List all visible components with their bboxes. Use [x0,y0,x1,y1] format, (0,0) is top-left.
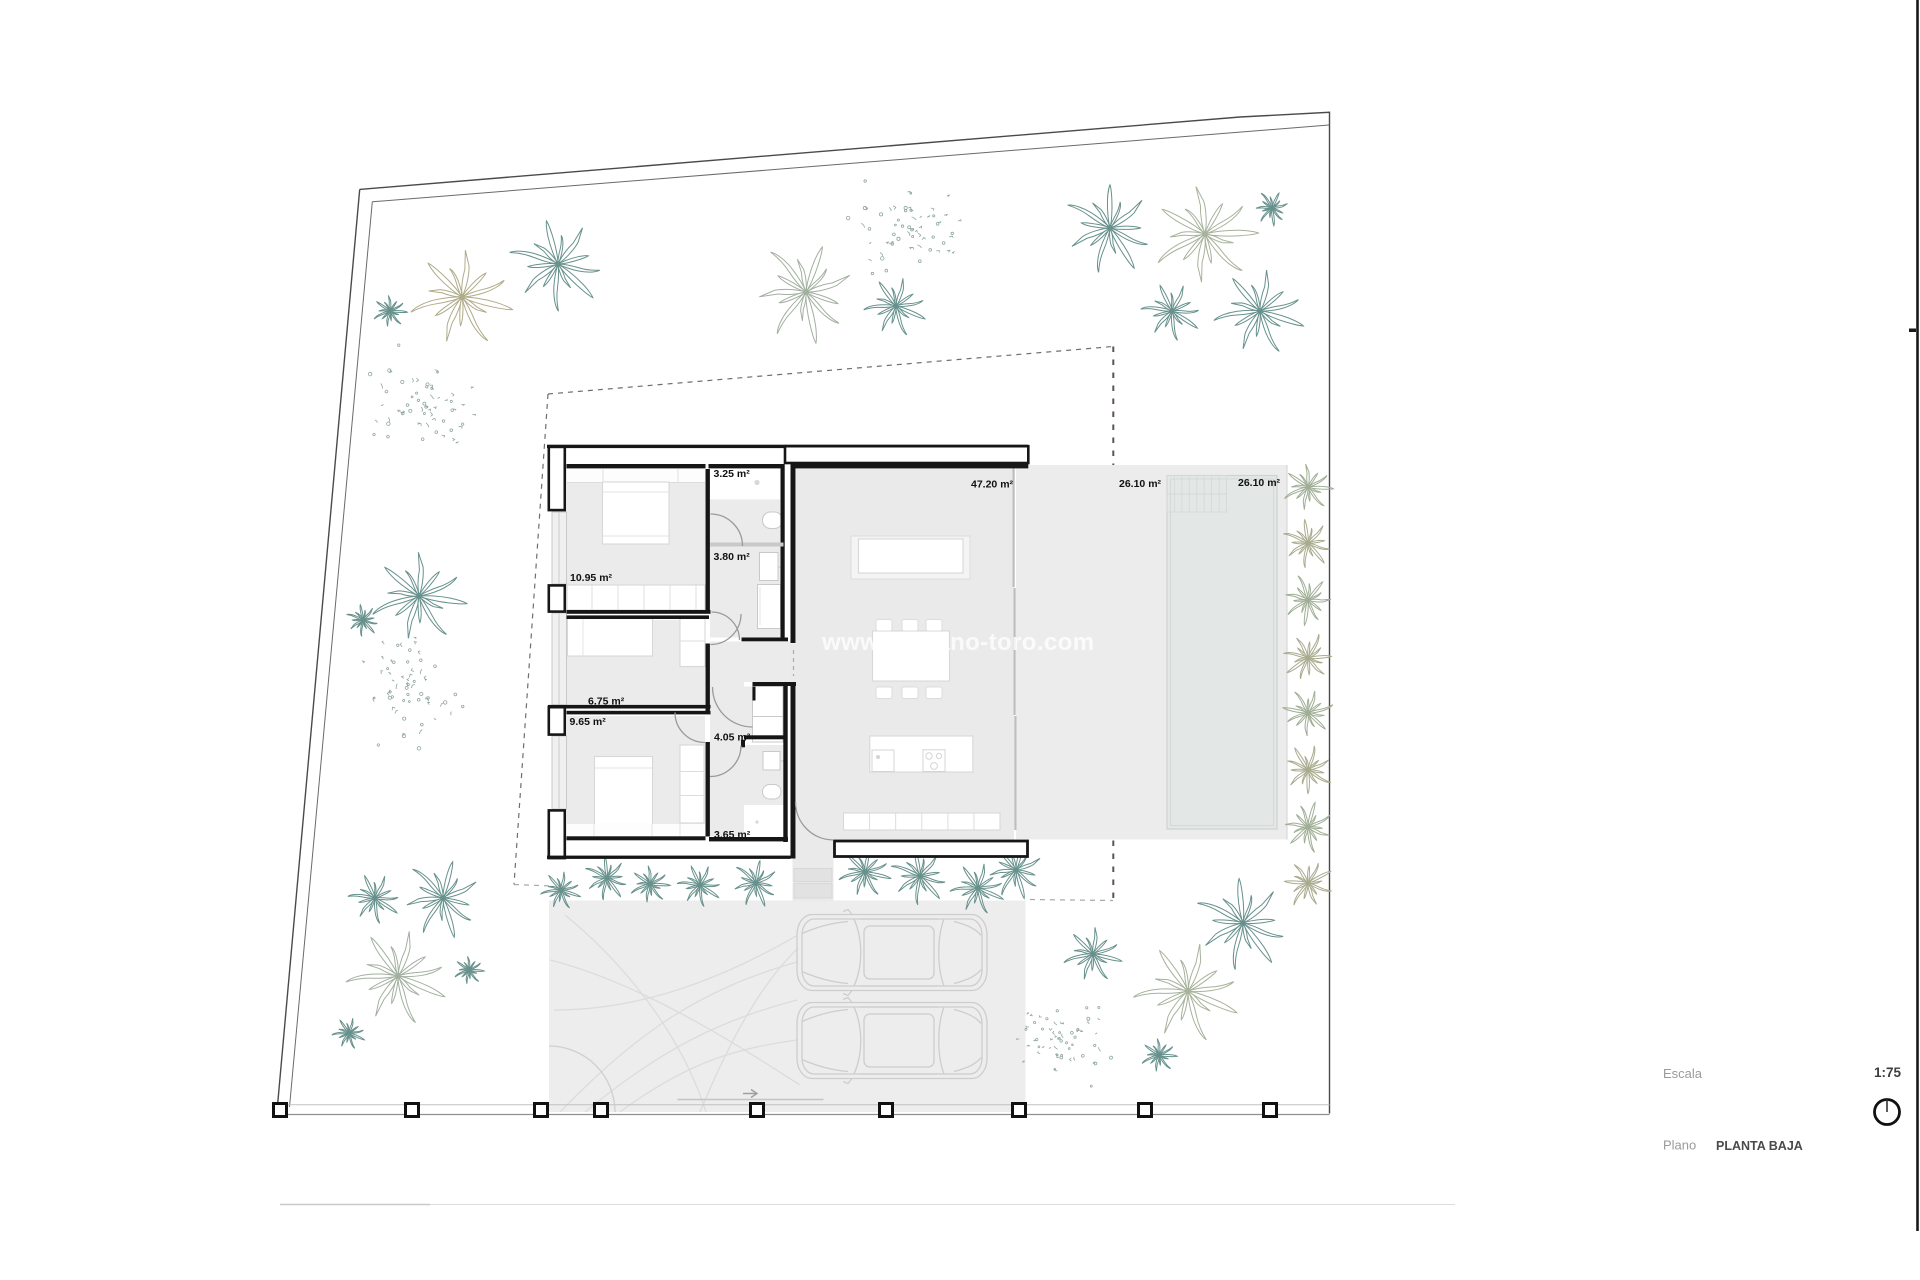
svg-text:47.20 m²: 47.20 m² [971,479,1014,491]
svg-text:3.25 m²: 3.25 m² [714,468,751,480]
svg-text:3.65 m²: 3.65 m² [714,829,751,841]
svg-text:1:75: 1:75 [1874,1065,1902,1080]
svg-text:www.hispano-toro.com: www.hispano-toro.com [821,629,1094,656]
svg-text:26.10 m²: 26.10 m² [1119,478,1162,490]
svg-text:Plano: Plano [1663,1138,1696,1153]
svg-text:6.75 m²: 6.75 m² [588,696,625,708]
svg-text:PLANTA BAJA: PLANTA BAJA [1716,1139,1803,1153]
svg-text:10.95 m²: 10.95 m² [570,572,613,584]
svg-text:Escala: Escala [1663,1066,1703,1081]
svg-text:3.80 m²: 3.80 m² [714,551,751,563]
svg-text:4.05 m²: 4.05 m² [714,732,751,744]
svg-text:9.65 m²: 9.65 m² [570,716,607,728]
svg-text:26.10 m²: 26.10 m² [1238,477,1281,489]
